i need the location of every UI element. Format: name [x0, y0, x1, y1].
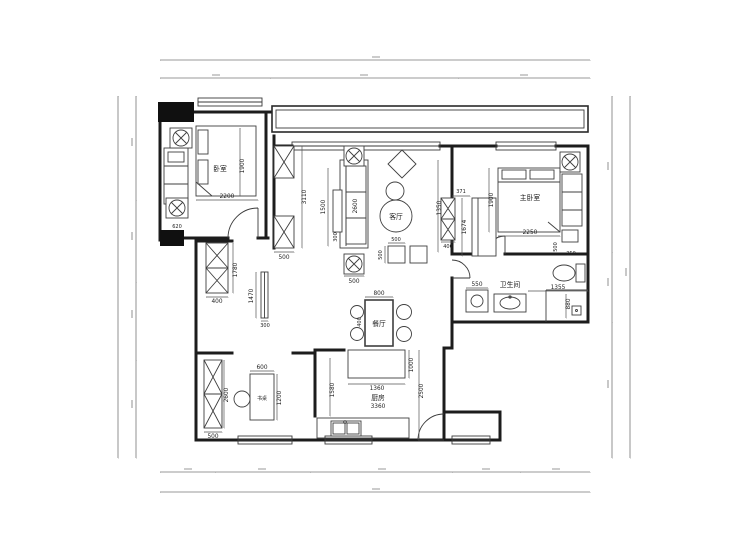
wardrobe-master — [562, 174, 582, 226]
washing-machine — [466, 290, 488, 312]
coffee-table — [380, 182, 412, 232]
window-bedroom2 — [198, 98, 262, 106]
dim-sofa-side: 1500 — [321, 199, 327, 214]
tv-cabinet — [441, 198, 455, 240]
dim-corner-col: 620 — [172, 224, 182, 230]
ceiling-fan-icon — [166, 198, 188, 218]
dim-island-w: 1360 — [370, 386, 385, 392]
dimension-lines — [196, 128, 588, 438]
ceiling-fan-icon — [344, 146, 364, 166]
dim-shower: 880 — [566, 298, 572, 309]
column-top-left — [158, 102, 194, 122]
dim-bed2-depth: 1900 — [240, 158, 246, 173]
dim-nightstand-h: 500 — [553, 242, 559, 252]
ceiling-fan-icon — [344, 254, 364, 274]
bookshelf-study — [204, 360, 222, 428]
dim-desk-d: 1200 — [277, 390, 283, 405]
dim-fan-box: 500 — [348, 279, 359, 285]
dim-island-d: 1000 — [409, 357, 415, 372]
window-porch — [452, 436, 490, 444]
dim-screen-h: 1470 — [249, 288, 255, 303]
room-label-kitchen: 厨房 — [371, 393, 385, 402]
column-left — [160, 230, 184, 246]
dim-shelf-h: 2600 — [224, 387, 230, 402]
window-kitchen — [325, 436, 372, 444]
dim-hall-wall: 3110 — [302, 189, 308, 204]
ottoman — [410, 246, 427, 263]
dim-nightstand-w: 350 — [566, 251, 576, 257]
dim-chair: 400 — [357, 317, 363, 327]
dim-sofa-len: 2600 — [353, 198, 359, 213]
dim-master-bed: 2250 — [523, 230, 538, 236]
ottoman — [388, 246, 405, 263]
dim-kitchen-left: 1580 — [330, 382, 336, 397]
pendant-lamp-icon — [388, 150, 416, 178]
dim-cabinet-w: 400 — [211, 299, 222, 305]
floor-plan-drawing: 卧室 客厅 主卧室 卫生间 餐厅 厨房 3360 书桌 — [0, 0, 740, 555]
dim-living-depth: 1350 — [437, 200, 443, 215]
toilet-icon — [553, 264, 585, 282]
desk-study — [234, 374, 274, 420]
bath-sink — [494, 294, 526, 312]
dim-ottoman-w: 500 — [391, 237, 401, 243]
dim-sofa-table: 300 — [333, 232, 339, 242]
dim-washer: 550 — [471, 282, 482, 288]
dim-table-w: 800 — [373, 291, 384, 297]
dim-bed2-width: 2200 — [220, 194, 235, 200]
balcony-strip — [272, 106, 588, 132]
bed-bedroom2 — [196, 126, 256, 196]
wardrobe-bedroom2 — [164, 148, 188, 204]
hall-pillar — [274, 146, 294, 178]
sofa-side-table — [333, 190, 342, 232]
dim-kitchen-d: 2500 — [419, 383, 425, 398]
dim-screen-w: 300 — [260, 323, 270, 329]
window-master — [496, 142, 556, 150]
room-label-bath: 卫生间 — [500, 280, 521, 289]
dim-ottoman-h: 500 — [378, 250, 384, 260]
dim-dresser: 1674 — [462, 219, 468, 234]
kitchen-island — [348, 350, 405, 378]
ceiling-fan-icon — [170, 128, 192, 148]
dim-tv-unit: 400 — [443, 244, 453, 250]
floor-plan-page: 卧室 客厅 主卧室 卫生间 餐厅 厨房 3360 书桌 — [0, 0, 740, 555]
door-kitchen — [418, 414, 444, 440]
door-bedroom2 — [228, 208, 258, 238]
room-label-bedroom2: 卧室 — [213, 164, 227, 173]
dim-tv-offset: 371 — [456, 189, 466, 195]
dim-kitchen-width: 3360 — [371, 404, 386, 410]
nightstand — [562, 230, 578, 242]
window-study — [238, 436, 292, 444]
dim-shelf-w: 500 — [207, 434, 218, 440]
ceiling-fan-icon — [560, 152, 580, 172]
dim-master-depth: 1900 — [489, 192, 495, 207]
room-label-desk: 书桌 — [257, 395, 267, 402]
dim-cabinet-h: 1780 — [233, 262, 239, 277]
window-living — [292, 142, 440, 150]
room-label-dining: 餐厅 — [372, 319, 386, 328]
dim-hall-col: 500 — [278, 255, 289, 261]
screen-panel — [261, 272, 268, 318]
room-label-master: 主卧室 — [520, 193, 541, 202]
hall-pillar — [274, 216, 294, 248]
dim-bath-width: 1355 — [551, 285, 566, 291]
room-label-living: 客厅 — [389, 212, 403, 221]
dim-desk-w: 600 — [256, 365, 267, 371]
kitchen-counter — [317, 418, 409, 438]
door-bath — [452, 260, 470, 278]
hall-cabinet — [206, 243, 228, 293]
